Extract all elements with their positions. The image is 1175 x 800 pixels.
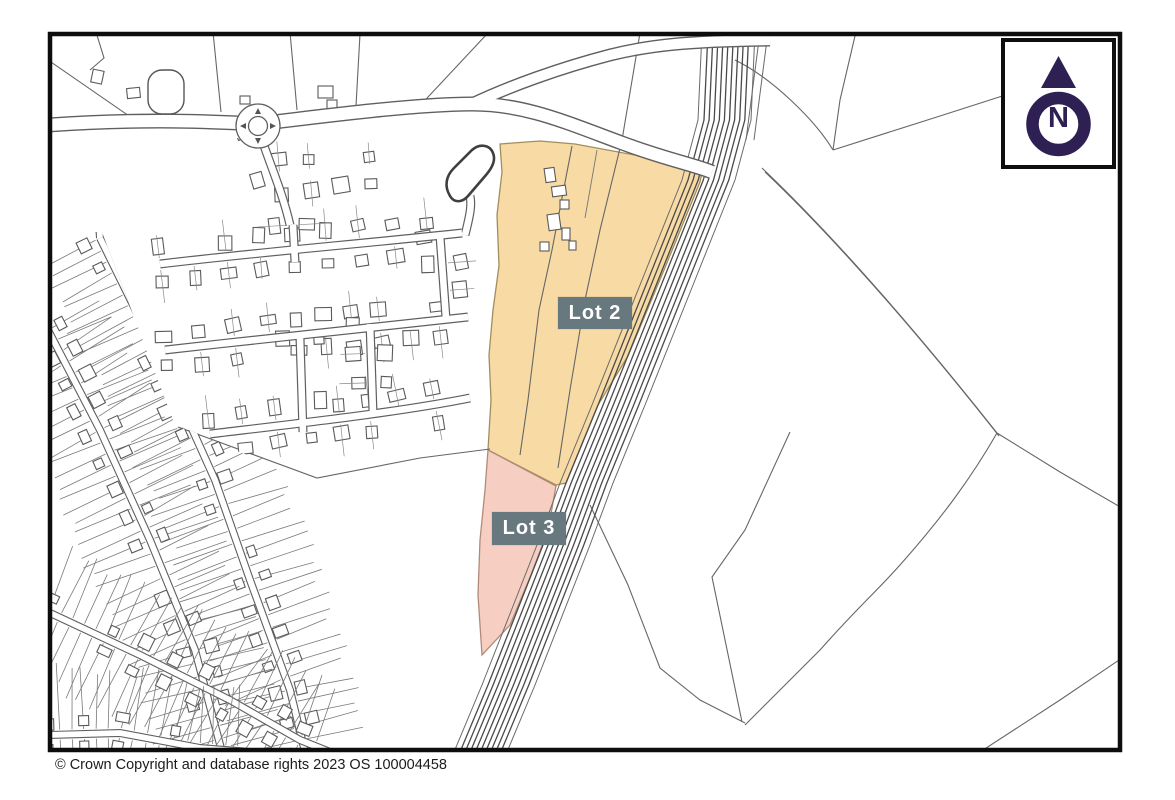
- map-house: [196, 479, 207, 491]
- map-house: [78, 716, 88, 726]
- map-house: [78, 429, 92, 444]
- map-house: [192, 325, 206, 338]
- map-house: [204, 504, 216, 515]
- map-house: [104, 150, 114, 161]
- map-house: [249, 633, 263, 648]
- map-house: [314, 391, 327, 408]
- map-house: [97, 645, 112, 658]
- map-house: [259, 569, 272, 580]
- map-canvas: [0, 0, 1175, 800]
- map-house: [385, 218, 400, 231]
- lot2-label: Lot 2: [558, 297, 632, 329]
- north-arrow-icon: [1041, 56, 1076, 88]
- map-house: [156, 527, 169, 542]
- map-house: [238, 442, 253, 455]
- map-house: [140, 296, 155, 310]
- map-house: [289, 262, 300, 273]
- map-house: [119, 510, 133, 526]
- map-house: [381, 376, 392, 388]
- map-house: [331, 176, 350, 194]
- map-house: [138, 633, 156, 651]
- lot3-label: Lot 3: [492, 512, 566, 545]
- map-house: [294, 680, 307, 696]
- map-house: [172, 369, 187, 382]
- map-house: [108, 416, 122, 431]
- map-house: [128, 539, 143, 553]
- map-house: [125, 665, 139, 678]
- north-letter: N: [1005, 102, 1112, 135]
- map-house: [157, 403, 175, 421]
- map-house: [250, 171, 266, 189]
- map-house: [355, 254, 369, 267]
- map-house: [365, 179, 377, 189]
- map-house: [265, 595, 280, 611]
- map-house: [377, 345, 393, 361]
- map-house: [118, 245, 135, 263]
- map-house: [322, 259, 334, 268]
- map-house: [287, 650, 302, 664]
- map-house: [76, 238, 92, 254]
- site-plan-page: Lot 2 Lot 3 N © Crown Copyright and data…: [0, 0, 1175, 800]
- copyright-text: © Crown Copyright and database rights 20…: [55, 757, 447, 773]
- map-house: [78, 364, 96, 382]
- map-house: [170, 725, 181, 736]
- map-house: [241, 605, 257, 618]
- map-house: [29, 328, 45, 344]
- map-house: [306, 432, 317, 443]
- map-house: [107, 223, 122, 239]
- map-house: [138, 355, 152, 370]
- map-house: [54, 316, 67, 330]
- north-compass: N: [1001, 38, 1116, 169]
- map-house: [81, 178, 91, 191]
- roundabout-island: [249, 117, 268, 136]
- map-house: [116, 712, 131, 724]
- map-house: [163, 619, 180, 636]
- map-house: [253, 227, 265, 243]
- map-house: [126, 271, 143, 289]
- map-house: [108, 625, 120, 637]
- map-house: [246, 545, 257, 558]
- map-house: [315, 307, 332, 320]
- map-house: [290, 313, 302, 327]
- map-house: [203, 638, 219, 654]
- map-house: [304, 710, 319, 725]
- map-house: [151, 379, 166, 392]
- map-house: [421, 256, 434, 273]
- pond-loop: [447, 146, 495, 202]
- map-house: [76, 206, 90, 219]
- map-house: [155, 331, 172, 343]
- map-house: [161, 360, 172, 371]
- estate-roads: [160, 128, 494, 434]
